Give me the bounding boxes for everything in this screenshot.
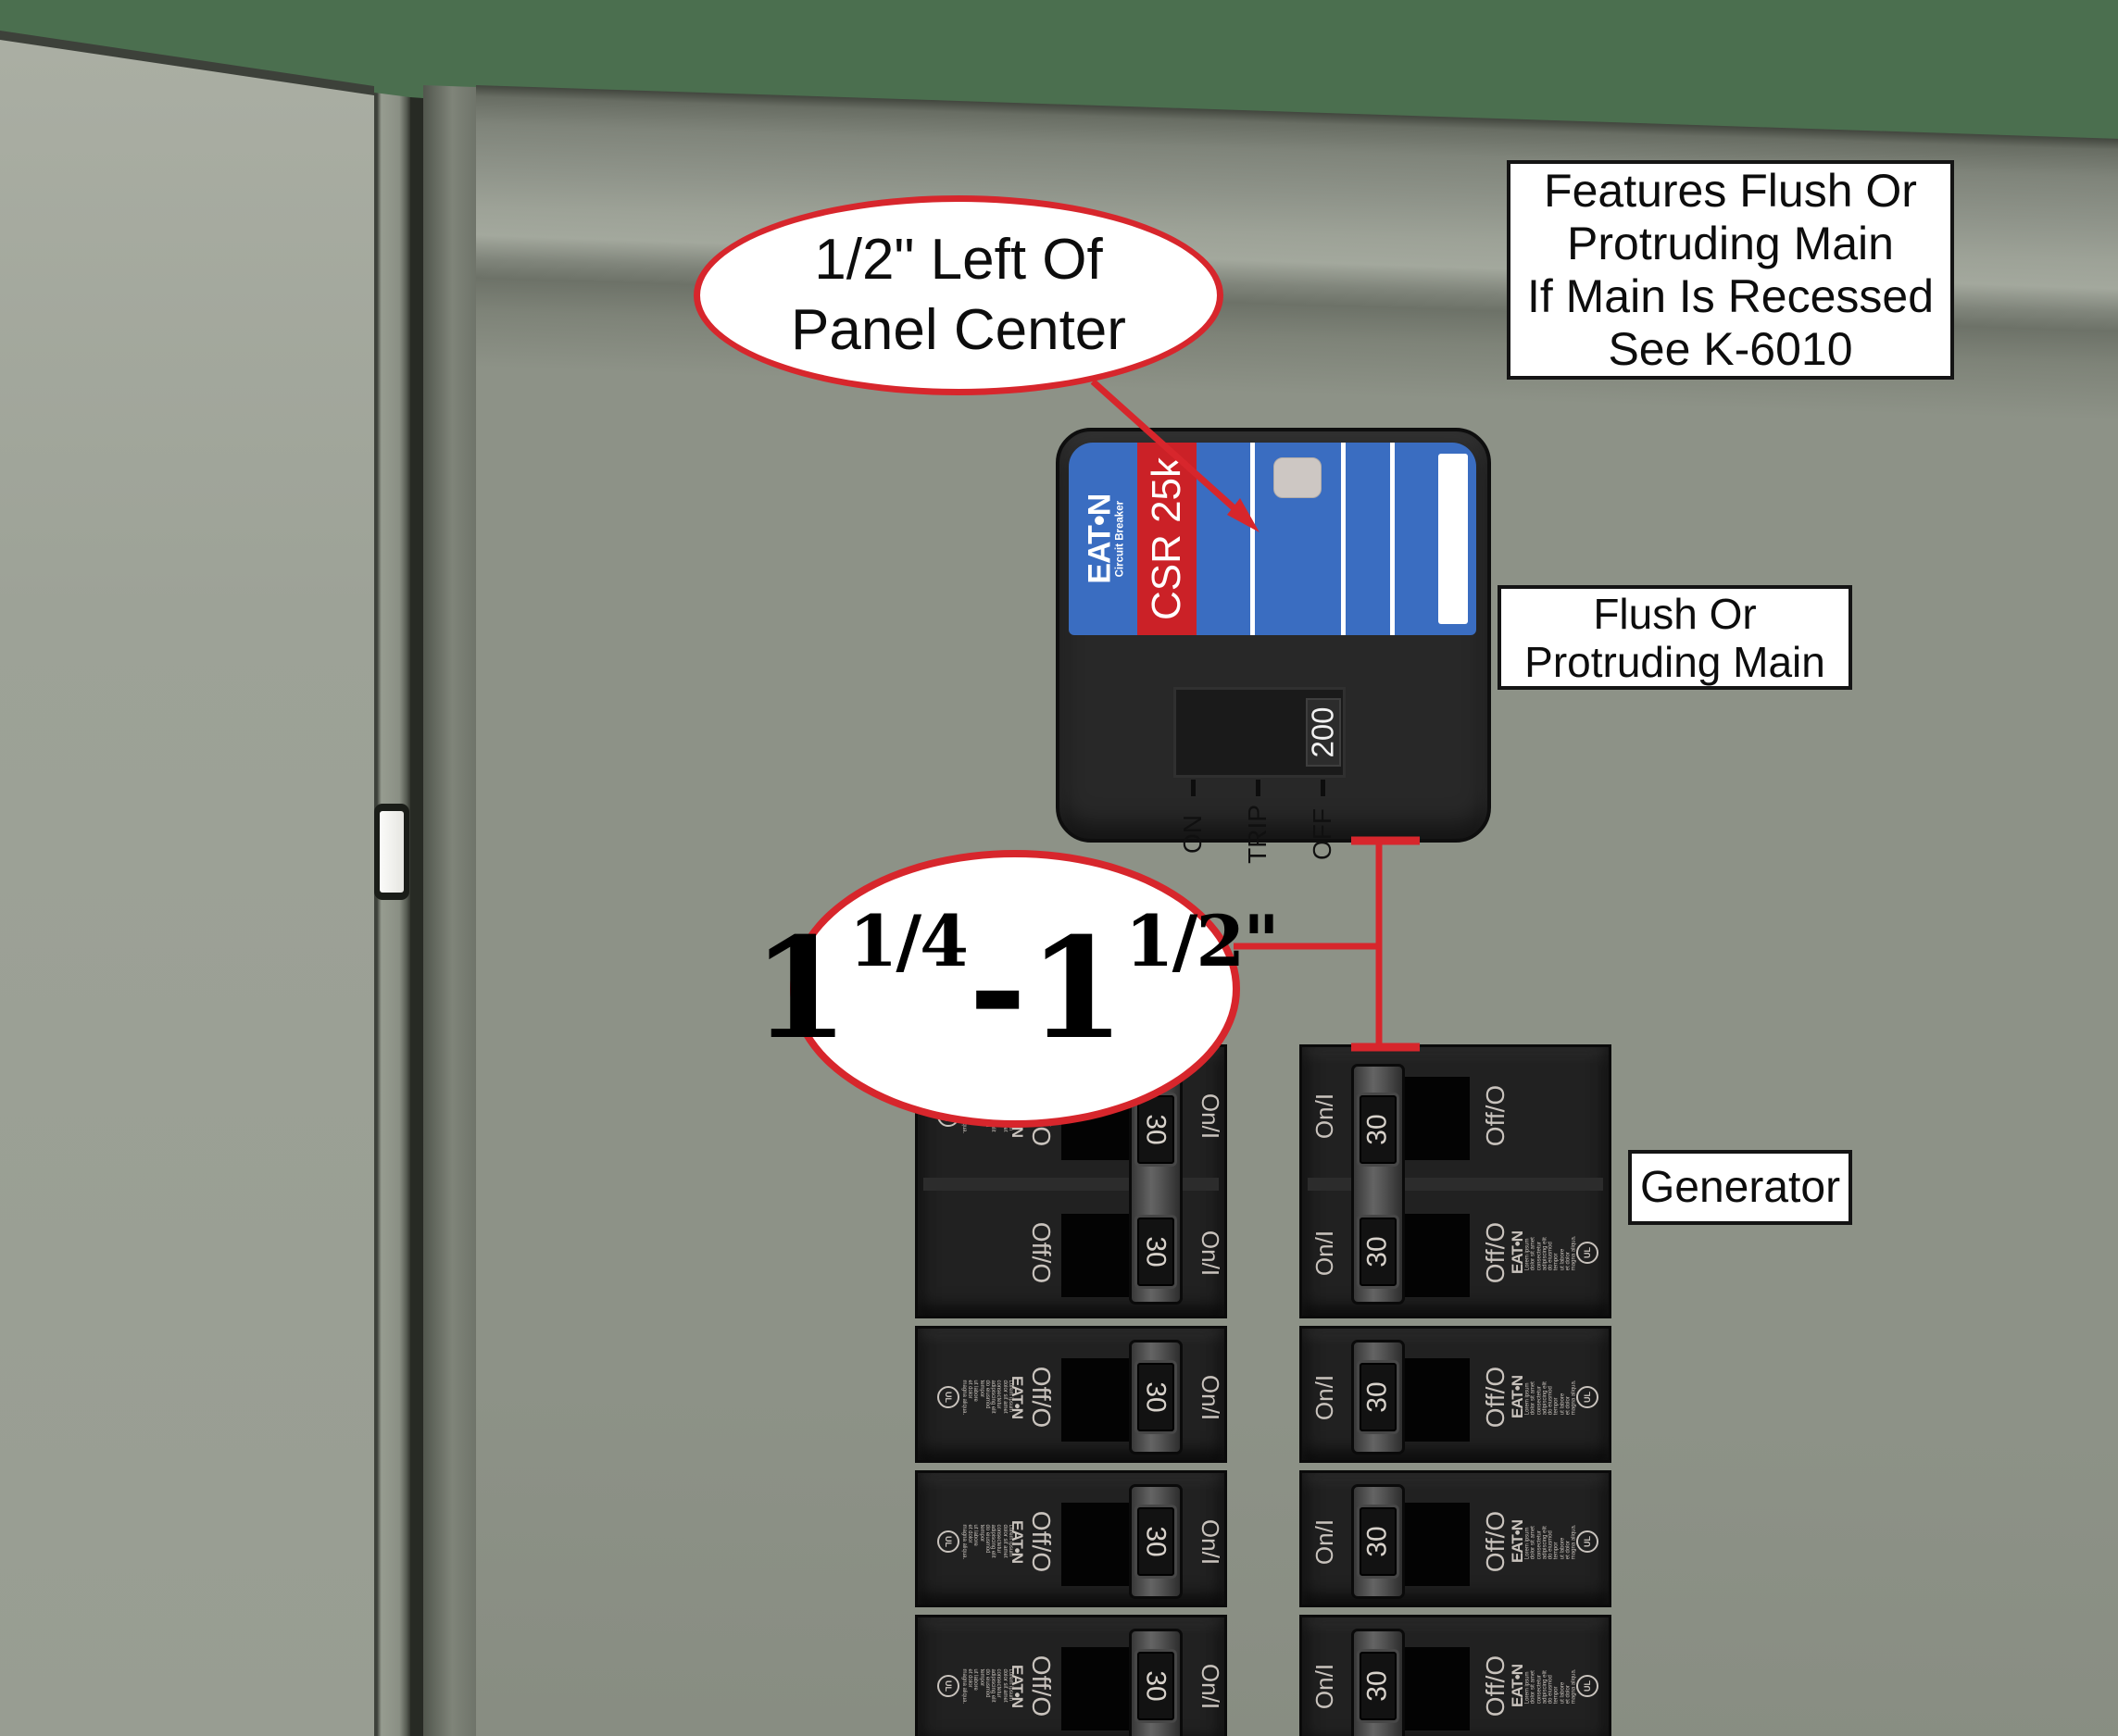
amp-rating-slot: 30 [1137,1652,1174,1720]
ul-mark-icon: UL [934,1617,962,1736]
breaker-label-window [1401,1358,1470,1442]
amp-rating-slot: 30 [1360,1363,1397,1431]
fine-print: Lorem ipsum dolor sit amet consectetur a… [1524,1617,1578,1736]
on-label: On/I [1307,1617,1344,1736]
flush-note: Flush Or Protruding Main [1498,585,1852,690]
ul-mark-icon: UL [934,1473,962,1610]
breaker-label-window [1401,1647,1470,1730]
eaton-logo-text: EAT•N [1084,494,1114,584]
ul-mark-icon: UL [934,1329,962,1466]
breaker-module-left-3: ULLorem ipsum dolor sit amet consectetur… [915,1470,1227,1607]
breaker-module-right-1: Off/OOn/IULLorem ipsum dolor sit amet co… [1299,1044,1611,1318]
breaker-label-window [1401,1503,1470,1586]
fine-print: Lorem ipsum dolor sit amet consectetur a… [1524,1473,1578,1610]
amp-rating-slot: 30 [1137,1218,1174,1286]
fine-print: Lorem ipsum dolor sit amet consectetur a… [1524,1329,1578,1466]
on-label: On/I [1192,1617,1229,1736]
breaker-label-window [1061,1503,1130,1586]
main-rating: 200 [1306,706,1341,757]
off-label: Off/O [1476,1473,1515,1610]
amp-rating-slot: 30 [1137,1095,1174,1164]
on-label: On/I [1307,1184,1344,1321]
spacing-whole2: 1 [1028,919,1124,1058]
off-label: Off/O [1476,1184,1515,1321]
breaker-module-left-2: ULLorem ipsum dolor sit amet consectetur… [915,1326,1227,1463]
features-line: If Main Is Recessed [1527,270,1934,323]
door-latch-handle [380,811,404,893]
features-line: See K-6010 [1608,323,1852,376]
label-divider-line [1250,443,1255,635]
off-label: Off/O [1021,1329,1060,1466]
breaker-label-window [1061,1214,1130,1297]
features-line: Features Flush Or [1544,165,1917,218]
breaker-label-window [1061,1358,1130,1442]
off-label: Off/O [1476,1329,1515,1466]
model-stripe: CSR 25k [1137,443,1197,635]
amp-rating-slot: 30 [1360,1218,1397,1286]
flush-line: Flush Or [1593,590,1756,638]
on-label: On/I [1192,1184,1229,1321]
panel-door [0,0,374,1736]
circuit-breaker-text: Circuit Breaker [1114,494,1125,584]
amp-rating-slot: 30 [1137,1363,1174,1431]
test-button[interactable] [1273,457,1322,498]
breaker-label-window [1401,1077,1470,1160]
position-label-on: ON [1172,798,1213,870]
position-tick [1191,780,1196,796]
model-text: CSR 25k [1144,457,1190,620]
position-label-off: OFF [1302,798,1343,870]
door-latch[interactable] [374,804,409,900]
main-breaker: EAT•N Circuit Breaker CSR 25k 200 ON TRI… [1056,428,1491,843]
breaker-label-window [1401,1214,1470,1297]
breaker-module-right-4: ULLorem ipsum dolor sit amet consectetur… [1299,1615,1611,1736]
off-label: Off/O [1021,1184,1060,1321]
on-label: On/I [1192,1473,1229,1610]
eaton-logo: EAT•N Circuit Breaker [1071,443,1139,635]
label-divider-line [1341,443,1346,635]
spacing-frac2: 1/2" [1125,900,1278,982]
panel-scene: ULLorem ipsum dolor sit amet consectetur… [0,0,2118,1736]
off-label: Off/O [1476,1047,1515,1184]
label-window [1438,454,1468,624]
on-label: On/I [1307,1473,1344,1610]
panel-box-side [423,85,476,1736]
spacing-frac1: 1/4 [849,900,968,982]
amp-rating-slot: 30 [1360,1507,1397,1576]
flush-line: Protruding Main [1524,638,1825,686]
on-label: On/I [1307,1047,1344,1184]
spacing-whole1: 1 [752,919,848,1058]
callout-spacing: 11/4-11/2" [790,850,1240,1128]
fine-print: Lorem ipsum dolor sit amet consectetur a… [1524,1184,1578,1321]
door-hinge-gap [410,0,423,1736]
features-line: Protruding Main [1567,218,1894,270]
generator-label: Generator [1628,1150,1852,1225]
position-tick [1256,780,1260,796]
callout-panel-center: 1/2" Left Of Panel Center [694,195,1223,395]
on-label: On/I [1192,1329,1229,1466]
amp-rating-slot: 30 [1360,1095,1397,1164]
off-label: Off/O [1476,1617,1515,1736]
callout-line2: Panel Center [791,295,1126,366]
label-divider-line [1390,443,1395,635]
position-tick [1321,780,1325,796]
amp-rating-slot: 30 [1360,1652,1397,1720]
features-note: Features Flush Or Protruding Main If Mai… [1507,160,1954,380]
spacing-dash: - [969,919,1026,1058]
on-label: On/I [1307,1329,1344,1466]
callout-line1: 1/2" Left Of [814,225,1103,295]
breaker-label-window [1061,1647,1130,1730]
off-label: Off/O [1021,1617,1060,1736]
position-label-trip: TRIP [1237,798,1278,870]
main-breaker-label: EAT•N Circuit Breaker CSR 25k [1069,443,1476,635]
breaker-module-right-2: ULLorem ipsum dolor sit amet consectetur… [1299,1326,1611,1463]
amp-rating-slot: 30 [1137,1507,1174,1576]
breaker-module-left-4: ULLorem ipsum dolor sit amet consectetur… [915,1615,1227,1736]
breaker-module-right-3: ULLorem ipsum dolor sit amet consectetur… [1299,1470,1611,1607]
main-switch-handle[interactable]: 200 [1306,698,1341,767]
spacing-unit: " [1243,900,1278,982]
off-label: Off/O [1021,1473,1060,1610]
